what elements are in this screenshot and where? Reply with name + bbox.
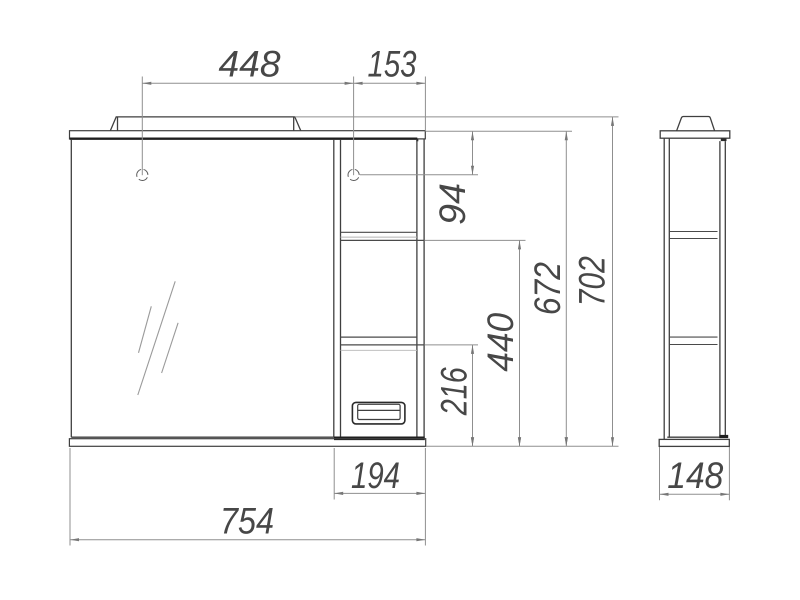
svg-text:448: 448 — [219, 44, 281, 85]
svg-text:440: 440 — [480, 312, 521, 371]
svg-text:153: 153 — [368, 44, 417, 85]
svg-text:194: 194 — [351, 455, 400, 496]
svg-text:702: 702 — [571, 256, 612, 306]
svg-text:216: 216 — [434, 367, 475, 416]
svg-text:672: 672 — [527, 262, 568, 315]
svg-text:94: 94 — [432, 183, 473, 225]
svg-text:148: 148 — [667, 455, 723, 496]
svg-text:754: 754 — [220, 501, 274, 542]
